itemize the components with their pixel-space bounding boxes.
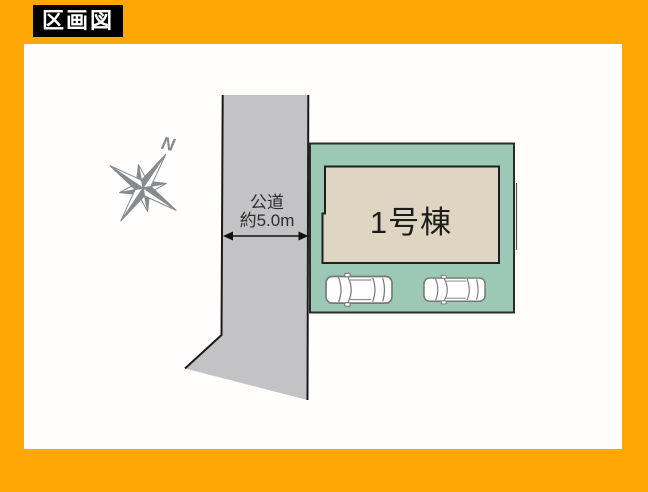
compass-rose-icon [87,132,199,244]
road-shape [185,95,308,400]
road-label: 公道 約5.0m [207,194,327,230]
page-title-badge: 区画図 [33,5,123,37]
building-label: 1号棟 [311,197,511,242]
road-right-edge [308,95,309,400]
plot-map-page: 区画図 [0,0,648,492]
page-title: 区画図 [42,10,114,32]
road-left-edge [185,95,223,369]
car-icon [326,273,392,306]
road-width-text: 約5.0m [207,212,327,230]
car-icon [424,275,485,304]
plot-plan-drawing [24,44,622,449]
road-type-text: 公道 [207,194,327,212]
plan-canvas: 公道 約5.0m 1号棟 N [24,44,622,449]
